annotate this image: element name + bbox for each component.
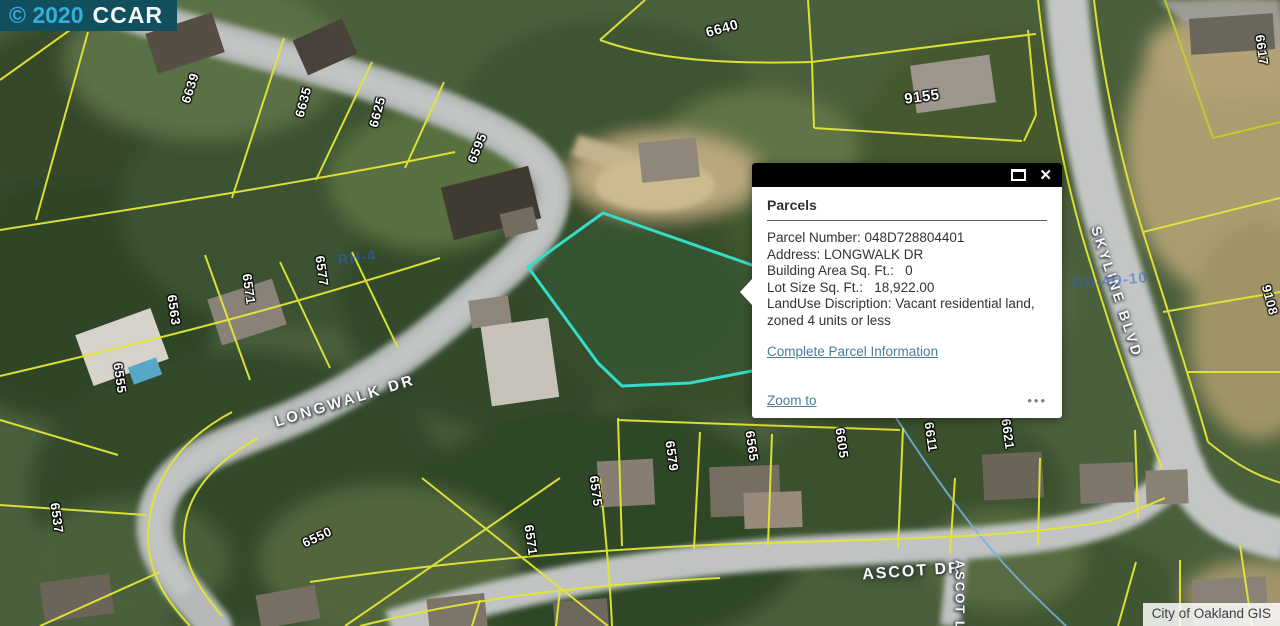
zoom-to-link[interactable]: Zoom to xyxy=(767,393,817,408)
more-options-button[interactable]: ••• xyxy=(1027,394,1047,407)
complete-parcel-information-link[interactable]: Complete Parcel Information xyxy=(767,344,938,359)
parcel-attribute-line: Building Area Sq. Ft.: 0 xyxy=(767,263,1047,280)
popup-title: Parcels xyxy=(752,187,1062,220)
parcel-popup: ✕ Parcels Parcel Number: 048D728804401Ad… xyxy=(752,163,1062,418)
parcel-attribute-line: LandUse Discription: Vacant residential … xyxy=(767,296,1047,329)
watermark-brand: CCAR xyxy=(93,2,163,29)
popup-titlebar[interactable]: ✕ xyxy=(752,163,1062,187)
ccar-watermark: © 2020 CCAR xyxy=(0,0,177,31)
parcel-attribute-line: Parcel Number: 048D728804401 xyxy=(767,230,1047,247)
parcel-attribute-line: Lot Size Sq. Ft.: 18,922.00 xyxy=(767,280,1047,297)
aerial-imagery xyxy=(0,0,1280,626)
gis-map-view: 6639663566256595664091556571657765636555… xyxy=(0,0,1280,626)
parcel-attribute-line: Address: LONGWALK DR xyxy=(767,247,1047,264)
parcel-attributes: Parcel Number: 048D728804401Address: LON… xyxy=(752,221,1062,329)
close-icon[interactable]: ✕ xyxy=(1039,168,1052,183)
watermark-year: © 2020 xyxy=(9,2,84,29)
map-attribution: City of Oakland GIS xyxy=(1143,603,1280,626)
maximize-icon[interactable] xyxy=(1011,169,1026,181)
popup-pointer-arrow xyxy=(740,279,752,305)
